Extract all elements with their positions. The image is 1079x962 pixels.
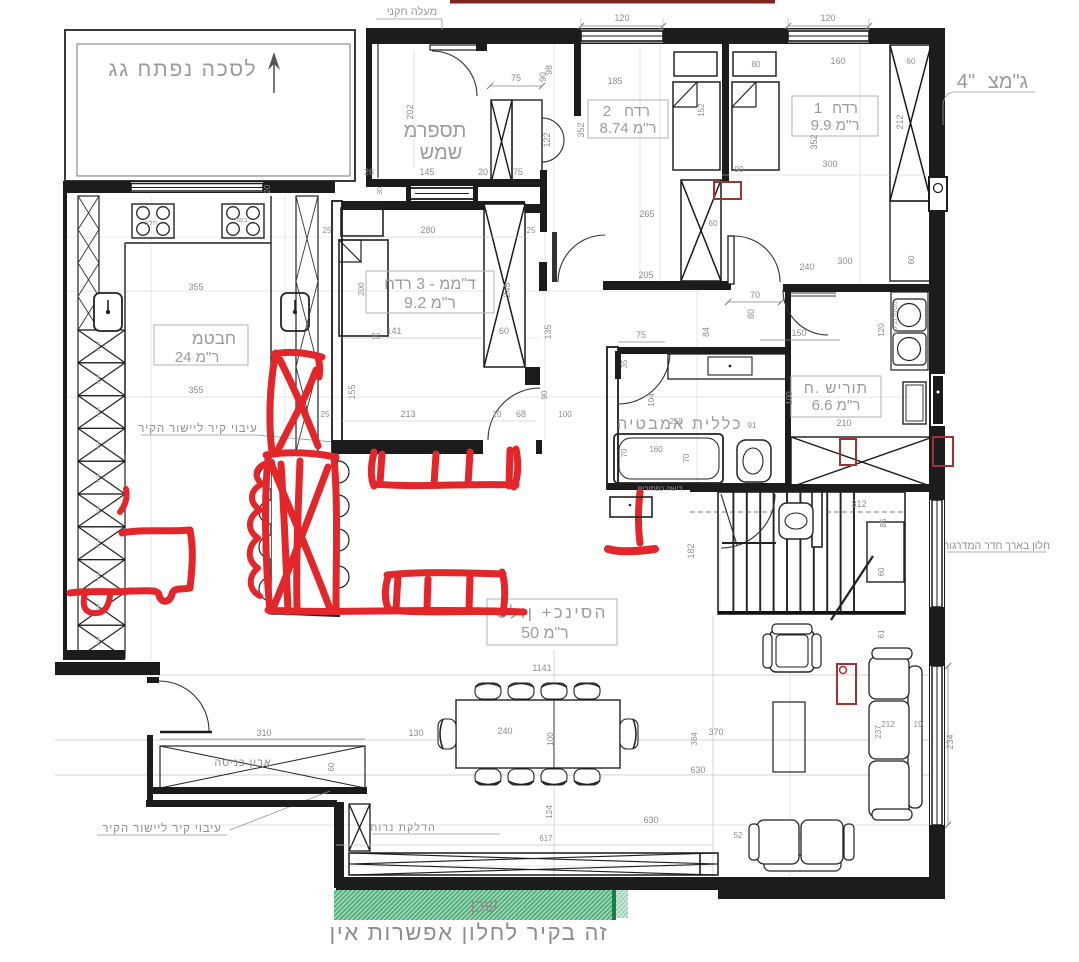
svg-text:202: 202 [405,104,415,119]
svg-text:75: 75 [513,167,523,177]
svg-text:75: 75 [636,330,646,340]
svg-text:1141: 1141 [532,663,551,673]
svg-text:תספרמ: תספרמ [404,120,467,142]
svg-text:עיבוי קיר ליישור הקיר: עיבוי קיר ליישור הקיר [102,822,222,835]
svg-text:לסכה נפתח גג: לסכה נפתח גג [109,58,258,81]
svg-text:ר"מ 24: ר"מ 24 [175,349,220,366]
svg-text:20: 20 [493,410,502,419]
svg-text:60: 60 [327,762,336,771]
svg-text:90: 90 [538,72,548,82]
svg-text:152: 152 [697,103,706,117]
svg-text:ר"מ 8.74: ר"מ 8.74 [599,120,656,137]
svg-text:265: 265 [639,209,654,219]
svg-text:חבטמ: חבטמ [192,329,236,348]
svg-text:35: 35 [620,359,629,368]
svg-text:60: 60 [709,219,718,228]
svg-text:דישה כפתורים: דישה כפתורים [638,484,683,493]
svg-text:104: 104 [647,393,656,407]
svg-text:70: 70 [620,448,629,457]
svg-text:60: 60 [907,255,916,264]
svg-text:20: 20 [263,184,272,193]
svg-text:בשרי: בשרי [233,217,248,224]
svg-text:מעלה חקני: מעלה חקני [387,5,437,18]
svg-text:25: 25 [527,226,536,235]
svg-text:212: 212 [881,720,895,729]
svg-text:ארון: ארון [96,341,102,351]
svg-text:75: 75 [511,73,521,83]
svg-text:84: 84 [701,327,711,337]
svg-text:210: 210 [836,418,851,428]
svg-text:250: 250 [669,417,683,426]
svg-text:234: 234 [945,734,955,749]
svg-text:ארון: ארון [96,374,102,384]
svg-text:300: 300 [837,256,852,266]
svg-text:ארון: ארון [96,505,102,515]
svg-text:280: 280 [420,225,435,235]
svg-text:370: 370 [708,727,723,737]
svg-text:ארון כניסה: ארון כניסה [214,757,271,769]
svg-text:ארון: ארון [96,472,102,482]
svg-text:70: 70 [682,453,691,462]
svg-text:חלבי: חלבי [143,219,158,227]
svg-text:30: 30 [377,187,384,195]
svg-text:122: 122 [542,132,552,147]
svg-text:212: 212 [895,114,905,129]
svg-text:90: 90 [540,390,549,399]
svg-text:26: 26 [364,167,374,177]
svg-text:1: 1 [814,100,822,117]
svg-text:150: 150 [791,328,806,338]
svg-text:ר"מ 9.9: ר"מ 9.9 [811,117,860,134]
svg-text:355: 355 [188,282,203,292]
svg-text:52: 52 [734,831,743,840]
svg-text:60: 60 [907,57,916,66]
svg-text:100: 100 [546,732,555,746]
svg-text:70: 70 [750,290,760,300]
svg-text:ד"ממ - 3 רדח: ד"ממ - 3 רדח [384,276,476,293]
svg-text:200: 200 [357,282,366,296]
svg-text:312: 312 [851,499,866,509]
svg-text:ארון: ארון [96,636,102,646]
svg-text:120: 120 [614,13,629,23]
svg-text:ארון: ארון [96,571,102,581]
svg-text:384: 384 [690,732,699,746]
svg-text:60: 60 [499,326,509,336]
svg-text:ר"מ 50: ר"מ 50 [521,625,568,642]
svg-text:2: 2 [603,103,611,120]
svg-text:60: 60 [877,567,886,576]
svg-text:91: 91 [748,421,757,430]
svg-text:מכונת כביסה: מכונת כביסה [893,302,899,335]
svg-text:120: 120 [877,323,886,337]
svg-text:160: 160 [830,56,845,66]
svg-text:4": 4" [957,71,975,93]
svg-text:ר"מ 9.2: ר"מ 9.2 [404,295,456,312]
svg-text:100: 100 [785,391,794,405]
svg-text:61: 61 [877,629,886,638]
svg-text:20: 20 [478,167,488,177]
svg-text:182: 182 [686,543,696,558]
svg-text:ג"מצ: ג"מצ [988,71,1028,93]
svg-text:205: 205 [638,270,653,280]
svg-text:630: 630 [690,765,705,775]
svg-text:90: 90 [372,332,381,341]
svg-text:617: 617 [539,834,553,843]
svg-text:185: 185 [607,76,622,86]
svg-text:זה בקיר לחלון אפשרות אין: זה בקיר לחלון אפשרות אין [329,920,608,945]
svg-text:141: 141 [386,326,401,336]
svg-text:100: 100 [558,410,572,419]
svg-text:213: 213 [400,409,415,419]
svg-text:630: 630 [643,815,658,825]
svg-text:ארון: ארון [96,538,102,548]
svg-text:352: 352 [809,134,819,149]
svg-text:רדח: רדח [832,100,858,117]
svg-text:68: 68 [516,409,526,419]
svg-text:רדח: רדח [624,103,650,120]
svg-text:355: 355 [188,385,203,395]
svg-text:85: 85 [879,518,888,527]
svg-text:ר"מ 6.6: ר"מ 6.6 [812,397,861,414]
svg-text:הדלקת נרות: הדלקת נרות [370,822,436,834]
svg-text:25: 25 [321,410,330,419]
svg-text:תוריש .ח: תוריש .ח [804,380,868,397]
svg-text:300: 300 [822,159,837,169]
svg-text:240: 240 [799,262,814,272]
svg-text:237: 237 [874,725,883,739]
svg-text:352: 352 [576,122,586,137]
svg-text:ארון: ארון [96,440,102,450]
svg-text:80: 80 [752,60,761,69]
svg-text:160: 160 [649,445,663,454]
svg-text:310: 310 [256,728,271,738]
svg-text:124: 124 [545,805,554,819]
svg-text:120: 120 [820,13,835,23]
svg-text:19: 19 [914,720,923,729]
svg-text:חלון בארך חדר המדרגות: חלון בארך חדר המדרגות [942,540,1050,552]
svg-text:240: 240 [497,726,512,736]
svg-text:ארון: ארון [96,407,102,417]
svg-text:שמש: שמש [420,142,463,164]
svg-text:135: 135 [543,324,553,339]
svg-text:155: 155 [347,384,357,399]
svg-text:145: 145 [419,167,434,177]
svg-text:עיבוי קיר ליישור הקיר: עיבוי קיר ליישור הקיר [138,422,258,435]
svg-text:80: 80 [746,309,756,319]
svg-text:שכן: שכן [470,896,497,916]
svg-text:90: 90 [735,165,744,174]
svg-text:130: 130 [408,728,423,738]
svg-text:245: 245 [502,282,512,297]
svg-text:25: 25 [323,226,332,235]
